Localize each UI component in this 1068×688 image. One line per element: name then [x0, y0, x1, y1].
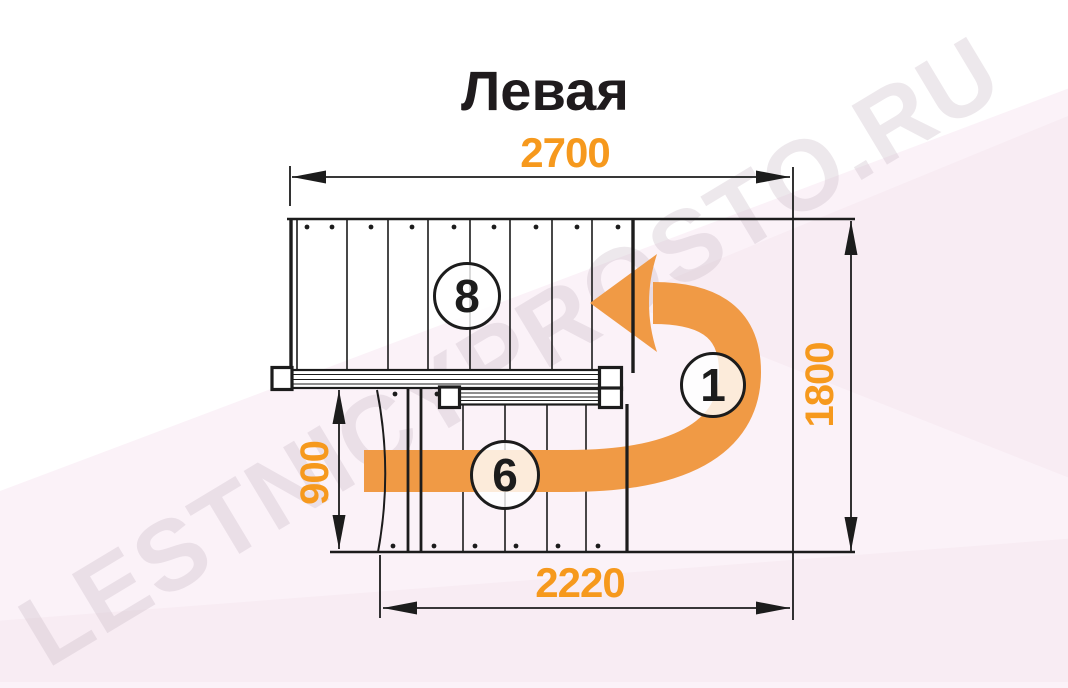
dimension-lower-flight-width: 900: [294, 418, 336, 528]
stringer-beams: [272, 368, 622, 408]
landing-turn-count: 1: [680, 352, 746, 418]
dimension-lower-flight-length: 2220: [505, 560, 655, 606]
dimension-total-width: 1800: [798, 315, 842, 455]
page-title: Левая: [360, 54, 730, 126]
step-count-lower-flight: 6: [470, 440, 540, 510]
dimension-total-length: 2700: [495, 130, 635, 176]
step-count-upper-flight: 8: [433, 262, 501, 330]
